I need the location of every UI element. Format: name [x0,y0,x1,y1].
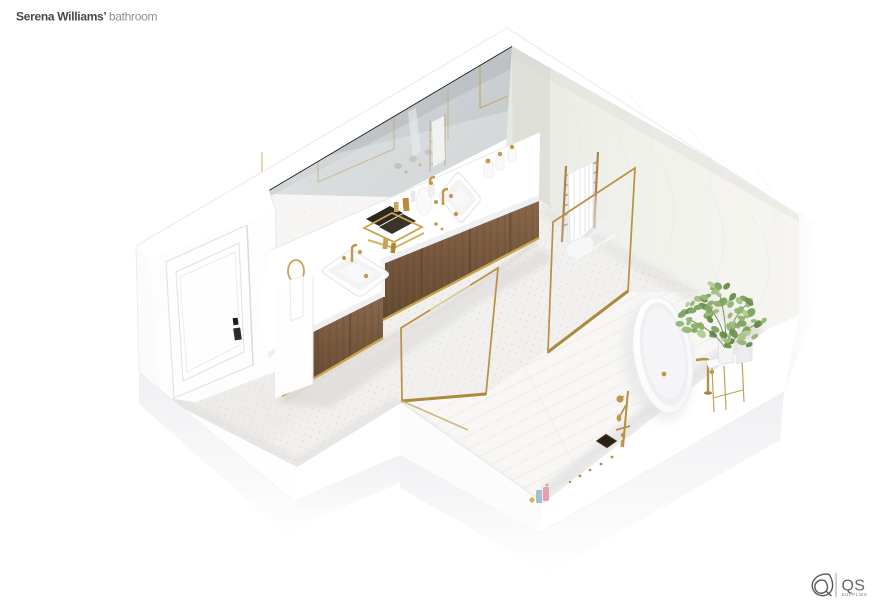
svg-text:Serena Williams’ bathroom: Serena Williams’ bathroom [16,10,157,24]
svg-text:SUPPLIES: SUPPLIES [842,592,868,597]
